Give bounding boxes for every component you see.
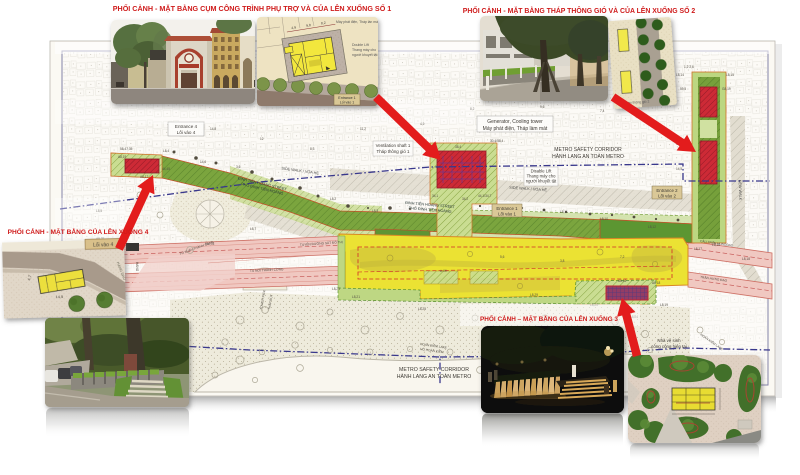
svg-text:Double Lift: Double Lift	[352, 43, 369, 47]
svg-text:PHỐI CẢNH - MẶT BẰNG CỤM CÔNG: PHỐI CẢNH - MẶT BẰNG CỤM CÔNG TRÌNH PHỤ …	[113, 3, 392, 13]
svg-text:Entrance 1: Entrance 1	[338, 96, 355, 100]
svg-text:Thang máy cho: Thang máy cho	[352, 48, 376, 52]
svg-text:người khuyết tật: người khuyết tật	[352, 53, 377, 57]
svg-text:Lối vào 1: Lối vào 1	[340, 101, 355, 105]
svg-text:9,8: 9,8	[306, 23, 311, 28]
svg-text:Máy phát điện, Tháp làn mát: Máy phát điện, Tháp làn mát	[336, 20, 379, 24]
svg-text:Lối vào 4: Lối vào 4	[93, 242, 114, 249]
svg-text:14,5: 14,5	[55, 294, 64, 299]
svg-text:4,9: 4,9	[291, 25, 296, 30]
svg-text:13,6: 13,6	[690, 416, 699, 421]
svg-text:8,2: 8,2	[321, 21, 326, 26]
